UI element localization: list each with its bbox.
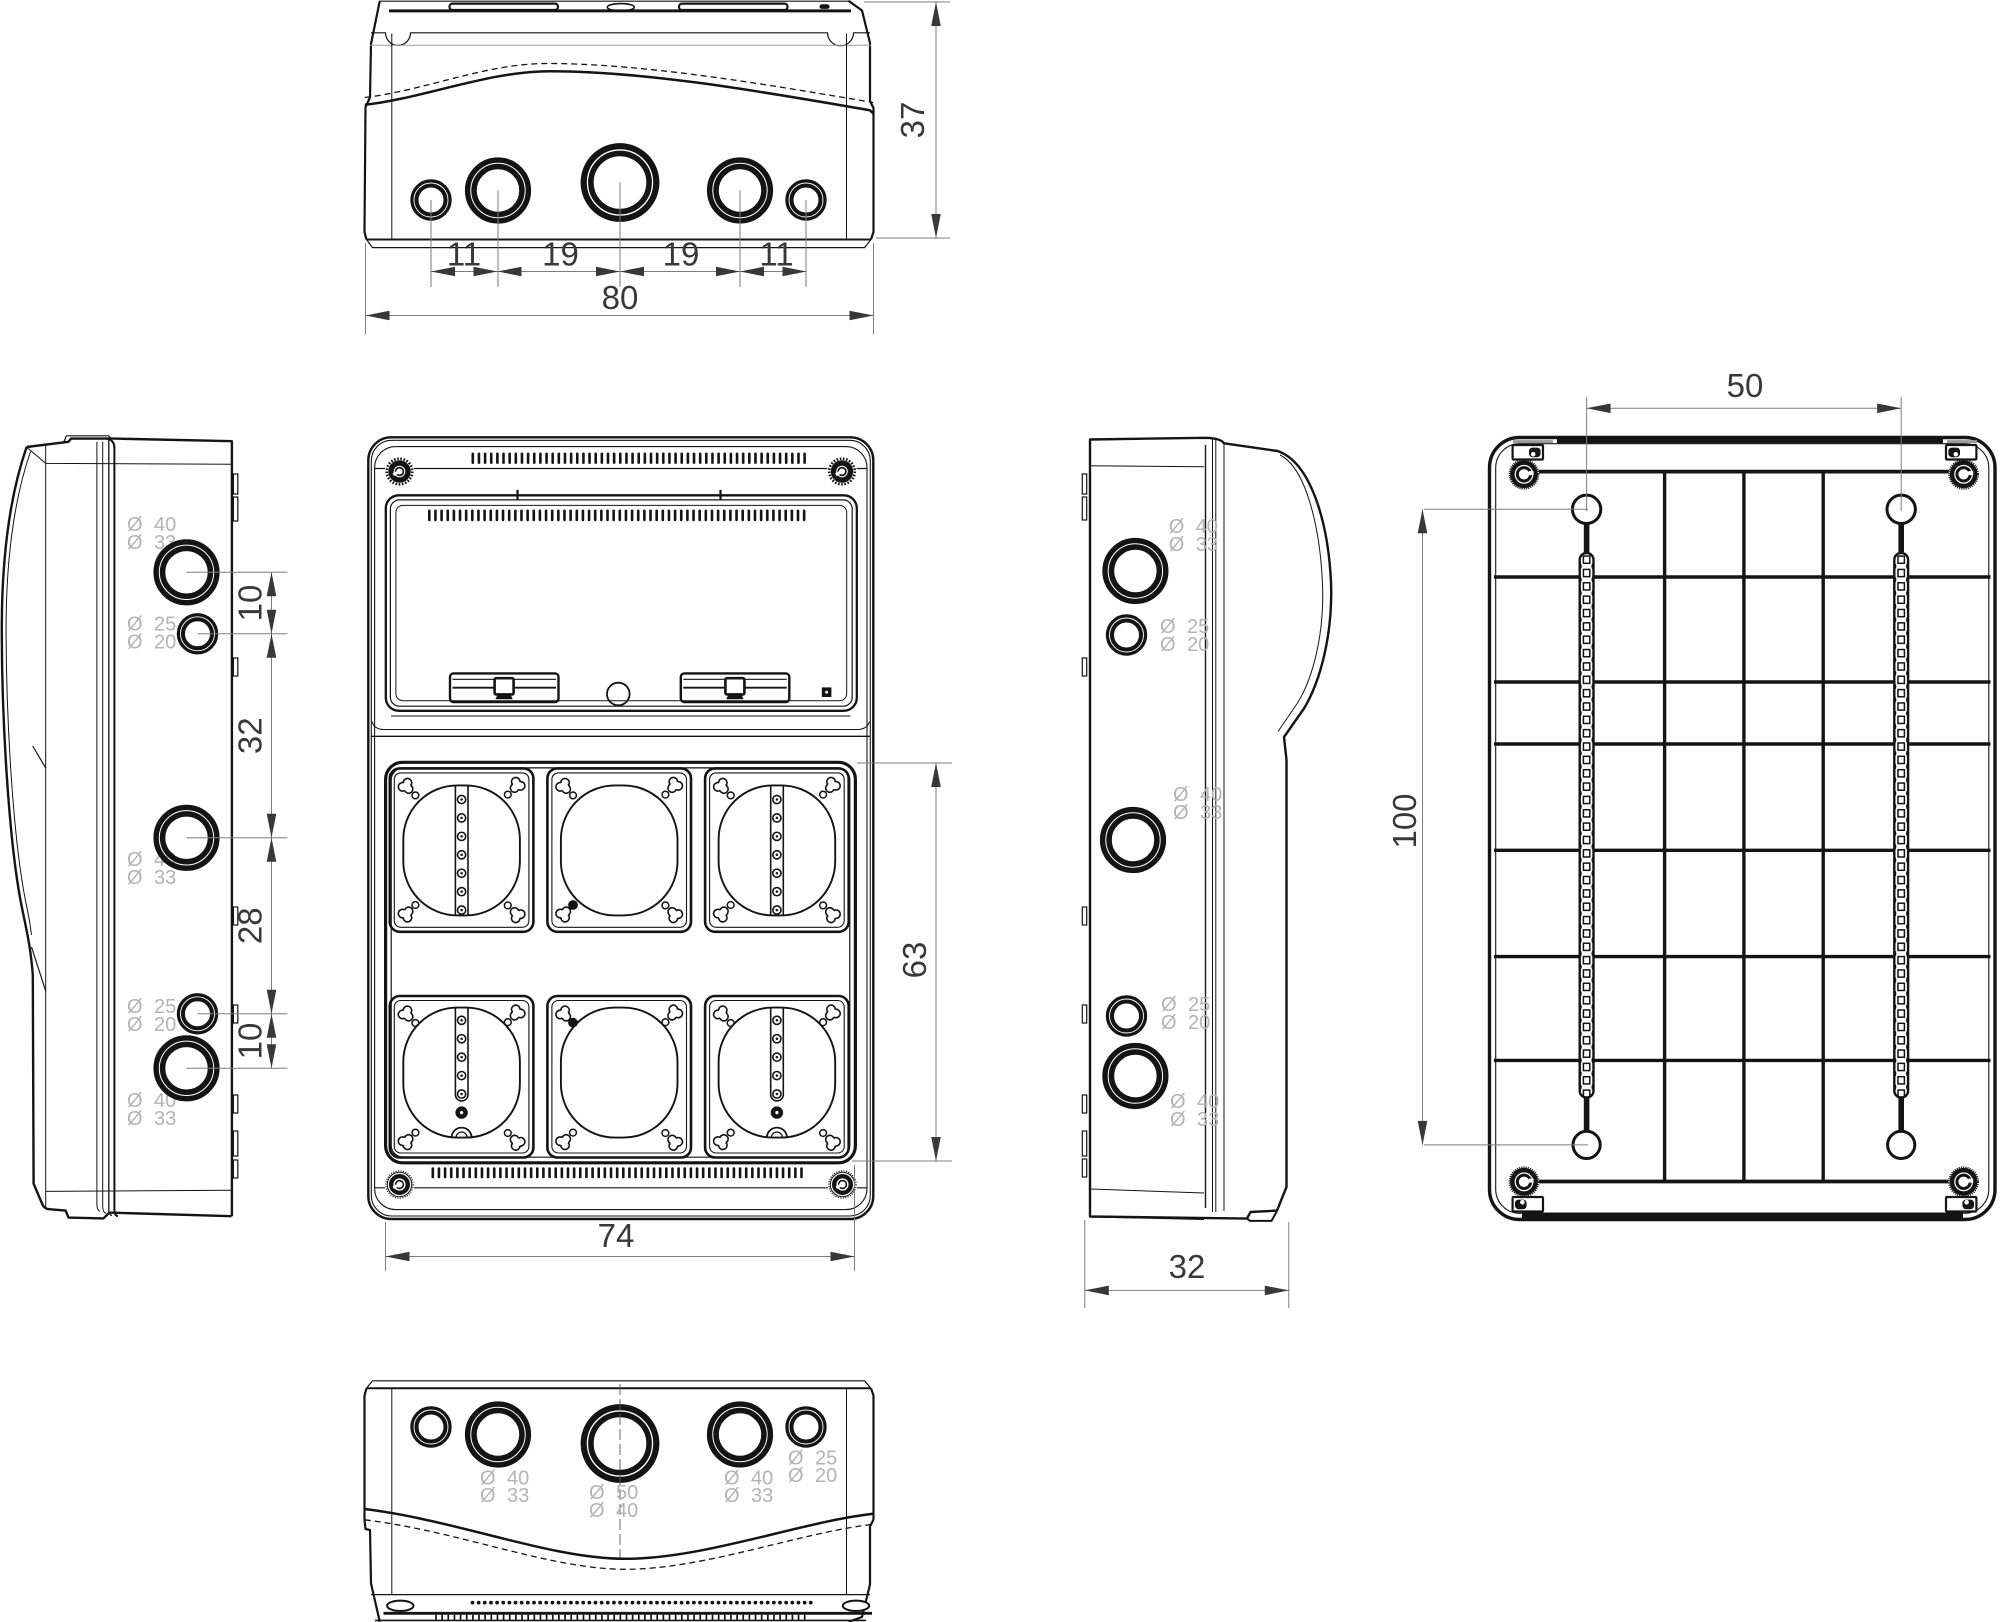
svg-text:Ø: Ø (589, 1500, 605, 1522)
svg-text:74: 74 (598, 1217, 635, 1254)
svg-text:Ø: Ø (127, 632, 143, 654)
svg-text:Ø: Ø (127, 1014, 143, 1036)
svg-text:Ø: Ø (1169, 534, 1185, 556)
svg-text:Ø: Ø (1173, 802, 1189, 824)
svg-text:28: 28 (232, 907, 269, 944)
svg-text:Ø: Ø (127, 867, 143, 889)
svg-text:19: 19 (542, 236, 579, 273)
svg-text:11: 11 (447, 236, 481, 273)
svg-text:40: 40 (616, 1500, 638, 1522)
svg-text:33: 33 (154, 867, 176, 889)
svg-text:19: 19 (663, 236, 700, 273)
svg-text:32: 32 (1169, 1248, 1206, 1285)
svg-text:20: 20 (1187, 634, 1209, 656)
svg-text:50: 50 (1727, 367, 1764, 404)
svg-text:10: 10 (232, 585, 269, 622)
svg-text:10: 10 (232, 1023, 269, 1060)
svg-text:Ø: Ø (480, 1485, 496, 1507)
svg-text:Ø: Ø (127, 1108, 143, 1130)
svg-text:32: 32 (232, 717, 269, 754)
svg-text:37: 37 (894, 102, 931, 139)
svg-text:Ø: Ø (1160, 634, 1176, 656)
svg-text:33: 33 (751, 1485, 773, 1507)
svg-text:33: 33 (1196, 534, 1218, 556)
svg-text:Ø: Ø (788, 1465, 804, 1487)
svg-text:20: 20 (1188, 1012, 1210, 1034)
svg-text:20: 20 (815, 1465, 837, 1487)
svg-text:Ø: Ø (1161, 1012, 1177, 1034)
svg-text:80: 80 (602, 279, 639, 316)
svg-text:63: 63 (896, 942, 933, 979)
svg-text:Ø: Ø (724, 1485, 740, 1507)
svg-text:33: 33 (507, 1485, 529, 1507)
svg-text:33: 33 (154, 1108, 176, 1130)
svg-text:100: 100 (1386, 793, 1423, 848)
svg-text:20: 20 (154, 632, 176, 654)
svg-text:11: 11 (759, 236, 793, 273)
svg-text:Ø: Ø (127, 532, 143, 554)
svg-text:33: 33 (1200, 802, 1222, 824)
svg-text:33: 33 (1197, 1109, 1219, 1131)
svg-text:Ø: Ø (1170, 1109, 1186, 1131)
svg-text:20: 20 (154, 1014, 176, 1036)
